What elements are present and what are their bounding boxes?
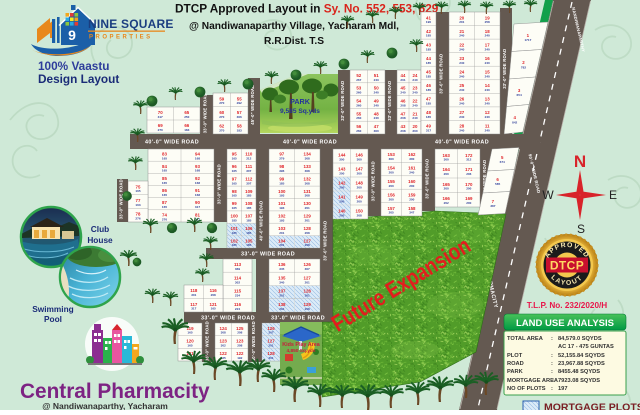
- svg-text:276: 276: [135, 217, 140, 221]
- svg-text:Kids Play Area: Kids Play Area: [282, 342, 321, 348]
- svg-text:212: 212: [246, 157, 251, 161]
- svg-text:250: 250: [184, 115, 189, 119]
- svg-text:DTCP Approved Layout in Sy. No: DTCP Approved Layout in Sy. No. 552, 553…: [175, 2, 439, 16]
- svg-text:270: 270: [219, 115, 224, 119]
- svg-text:240: 240: [459, 115, 464, 119]
- svg-text:201: 201: [305, 206, 310, 210]
- svg-text:165: 165: [162, 193, 167, 197]
- svg-text:842: 842: [512, 121, 517, 125]
- svg-text:234: 234: [235, 294, 240, 298]
- svg-text::: :: [551, 336, 553, 342]
- svg-text:240: 240: [374, 103, 379, 107]
- svg-text:308: 308: [305, 169, 310, 173]
- svg-text:165: 165: [232, 206, 237, 210]
- svg-text:PARK: PARK: [507, 369, 524, 375]
- svg-text:200: 200: [339, 213, 344, 217]
- svg-text::: :: [551, 361, 553, 367]
- svg-text:185: 185: [426, 102, 431, 106]
- svg-text:165: 165: [211, 307, 216, 311]
- svg-text:200: 200: [409, 197, 414, 201]
- svg-text:200: 200: [389, 171, 394, 175]
- svg-text:387: 387: [490, 204, 495, 208]
- svg-text:202: 202: [444, 201, 449, 205]
- svg-text:308: 308: [305, 194, 310, 198]
- svg-text:165: 165: [232, 194, 237, 198]
- svg-text:240: 240: [459, 34, 464, 38]
- svg-text:260: 260: [356, 103, 361, 107]
- svg-text:@ Nandiwanaparthy Village, Yac: @ Nandiwanaparthy Village, Yacharam Mdl,: [189, 21, 399, 32]
- svg-text:183: 183: [237, 129, 242, 133]
- svg-text:W: W: [542, 188, 554, 202]
- svg-text:258: 258: [485, 20, 490, 24]
- svg-text:201: 201: [305, 219, 310, 223]
- svg-text:200: 200: [444, 172, 449, 176]
- svg-text:200: 200: [466, 187, 471, 191]
- svg-text::: :: [552, 378, 554, 384]
- svg-text:674: 674: [500, 160, 505, 164]
- svg-text:208: 208: [357, 213, 362, 217]
- svg-text:240: 240: [400, 91, 405, 95]
- svg-text:240: 240: [459, 88, 464, 92]
- svg-text:165: 165: [187, 343, 192, 347]
- svg-text::: :: [551, 353, 553, 359]
- svg-text:33'-0" WIDE ROAD: 33'-0" WIDE ROAD: [119, 179, 124, 219]
- svg-text:MORTGAGE PLOTS: MORTGAGE PLOTS: [544, 402, 640, 411]
- svg-text:240: 240: [412, 103, 417, 107]
- svg-text:300: 300: [389, 157, 394, 161]
- svg-text:33'-0" WIDE ROAD: 33'-0" WIDE ROAD: [203, 93, 208, 133]
- svg-text:300: 300: [339, 157, 344, 161]
- svg-text:307: 307: [305, 267, 310, 271]
- svg-text:185: 185: [232, 219, 237, 223]
- svg-text:585: 585: [495, 182, 500, 186]
- svg-text:NINE SQUARE: NINE SQUARE: [88, 17, 174, 31]
- svg-text:234: 234: [279, 307, 284, 311]
- svg-text::: :: [551, 369, 553, 375]
- svg-text:33'-0" WIDE ROAD: 33'-0" WIDE ROAD: [271, 316, 325, 322]
- svg-text:240: 240: [412, 78, 417, 82]
- svg-text:@ Nandiwanaparthy, Yacharam: @ Nandiwanaparthy, Yacharam: [42, 401, 168, 410]
- svg-text:240: 240: [485, 34, 490, 38]
- svg-text:201: 201: [279, 243, 284, 247]
- svg-text:200: 200: [389, 197, 394, 201]
- svg-text:100% Vaastu: 100% Vaastu: [38, 59, 109, 73]
- svg-text:193: 193: [279, 219, 284, 223]
- svg-text:347: 347: [409, 211, 414, 215]
- svg-text:183: 183: [184, 128, 189, 132]
- svg-text:396: 396: [279, 169, 284, 173]
- svg-text:N: N: [574, 152, 586, 171]
- svg-text:782: 782: [521, 66, 526, 70]
- svg-text:200: 200: [389, 184, 394, 188]
- svg-text:267: 267: [356, 78, 361, 82]
- svg-text:185: 185: [426, 115, 431, 119]
- svg-text:312: 312: [466, 158, 471, 162]
- svg-text:185: 185: [246, 243, 251, 247]
- svg-text:8455.48 SQYDS: 8455.48 SQYDS: [558, 369, 600, 375]
- svg-text:PROPERTIES: PROPERTIES: [89, 35, 153, 41]
- svg-text:276: 276: [162, 217, 167, 221]
- svg-text:165: 165: [162, 181, 167, 185]
- svg-text:185: 185: [279, 181, 284, 185]
- svg-text:200: 200: [339, 199, 344, 203]
- svg-text:301: 301: [279, 294, 284, 298]
- svg-text:200: 200: [357, 199, 362, 203]
- svg-text:208: 208: [237, 343, 242, 347]
- svg-text:201: 201: [268, 343, 273, 347]
- svg-text:308: 308: [305, 181, 310, 185]
- svg-text:302: 302: [221, 343, 226, 347]
- svg-text:260: 260: [356, 116, 361, 120]
- svg-text:208: 208: [237, 331, 242, 335]
- svg-text:208: 208: [400, 103, 405, 107]
- svg-text:7923.08 SQYDS: 7923.08 SQYDS: [558, 378, 600, 384]
- svg-text:270: 270: [158, 128, 163, 132]
- svg-text:243: 243: [374, 78, 379, 82]
- svg-text:240: 240: [374, 116, 379, 120]
- svg-text:ROAD: ROAD: [507, 361, 524, 367]
- svg-text:T.L.P. No. 232/2020/H: T.L.P. No. 232/2020/H: [527, 301, 607, 310]
- svg-text:House: House: [87, 235, 113, 245]
- svg-text:S: S: [577, 222, 585, 236]
- svg-text:185: 185: [426, 34, 431, 38]
- svg-text:301: 301: [305, 294, 310, 298]
- svg-text:52,155.84 SQYDS: 52,155.84 SQYDS: [558, 353, 605, 359]
- svg-text:300: 300: [444, 158, 449, 162]
- svg-text:33'-0" WIDE ROAD: 33'-0" WIDE ROAD: [439, 54, 444, 94]
- svg-text:45'-0" WIDE ROAD: 45'-0" WIDE ROAD: [250, 85, 255, 125]
- svg-text:200: 200: [357, 171, 362, 175]
- svg-text:200: 200: [339, 185, 344, 189]
- svg-text:300: 300: [409, 157, 414, 161]
- svg-text:197: 197: [558, 386, 568, 392]
- svg-text:40'-0" WIDE ROAD: 40'-0" WIDE ROAD: [145, 140, 199, 146]
- svg-text:185: 185: [426, 74, 431, 78]
- svg-text:300: 300: [374, 129, 379, 133]
- svg-text:33'-0" WIDE ROAD: 33'-0" WIDE ROAD: [387, 81, 392, 121]
- svg-text:340: 340: [279, 280, 284, 284]
- svg-text:240: 240: [485, 47, 490, 51]
- svg-text:317: 317: [195, 205, 200, 209]
- svg-text:40'-0" WIDE ROAD: 40'-0" WIDE ROAD: [283, 140, 337, 146]
- svg-text:165: 165: [135, 189, 140, 193]
- svg-text:201: 201: [459, 20, 464, 24]
- svg-text:185: 185: [232, 243, 237, 247]
- svg-text:84,579.0 SQYDS: 84,579.0 SQYDS: [558, 336, 602, 342]
- svg-text:308: 308: [221, 331, 226, 335]
- svg-text:DTCP: DTCP: [550, 259, 584, 273]
- svg-text:307: 307: [268, 331, 273, 335]
- svg-text:240: 240: [459, 61, 464, 65]
- svg-text:PARK: PARK: [290, 97, 311, 106]
- svg-text:Central Pharmacity: Central Pharmacity: [20, 380, 210, 403]
- svg-text:33'-0" WIDE ROAD: 33'-0" WIDE ROAD: [425, 159, 430, 199]
- svg-text:240: 240: [374, 91, 379, 95]
- svg-text:PLOT: PLOT: [507, 353, 523, 359]
- svg-text:205: 205: [389, 211, 394, 215]
- svg-text:33'-0" WIDE ROAD: 33'-0" WIDE ROAD: [502, 49, 507, 89]
- svg-text:302: 302: [235, 280, 240, 284]
- svg-text:168: 168: [195, 169, 200, 173]
- svg-text:33'-0" WIDE ROAD: 33'-0" WIDE ROAD: [371, 161, 376, 201]
- svg-text:185: 185: [246, 231, 251, 235]
- svg-text:240: 240: [485, 129, 490, 133]
- svg-text:185: 185: [246, 206, 251, 210]
- svg-text:190: 190: [426, 20, 431, 24]
- svg-text:40'-0" WIDE ROAD: 40'-0" WIDE ROAD: [435, 140, 489, 146]
- svg-text:260: 260: [356, 129, 361, 133]
- svg-text:307: 307: [246, 169, 251, 173]
- svg-text:200: 200: [357, 185, 362, 189]
- svg-text:185: 185: [232, 231, 237, 235]
- svg-text:240: 240: [485, 61, 490, 65]
- svg-text:9,585 Sq.yds: 9,585 Sq.yds: [280, 108, 320, 115]
- svg-text:185: 185: [426, 47, 431, 51]
- svg-text:200: 200: [444, 187, 449, 191]
- svg-text:9: 9: [68, 27, 76, 43]
- svg-text:200: 200: [409, 184, 414, 188]
- svg-text:Pool: Pool: [44, 314, 62, 324]
- svg-text:200: 200: [466, 201, 471, 205]
- svg-text:240: 240: [459, 102, 464, 106]
- svg-text:208: 208: [305, 307, 310, 311]
- svg-text:317: 317: [158, 115, 163, 119]
- svg-text:23,967.88 SQYDS: 23,967.88 SQYDS: [558, 361, 605, 367]
- svg-text:240: 240: [409, 171, 414, 175]
- svg-text:185: 185: [426, 88, 431, 92]
- svg-text:NO OF PLOTS: NO OF PLOTS: [507, 386, 546, 392]
- svg-text:1717: 1717: [524, 38, 531, 42]
- svg-text:165: 165: [162, 169, 167, 173]
- svg-text:240: 240: [485, 88, 490, 92]
- svg-text:185: 185: [246, 194, 251, 198]
- svg-text:33'-0" WIDE ROAD: 33'-0" WIDE ROAD: [241, 252, 295, 258]
- svg-text:206: 206: [466, 172, 471, 176]
- svg-text:33'-0" WIDE ROAD: 33'-0" WIDE ROAD: [340, 81, 345, 121]
- svg-text:192: 192: [237, 356, 242, 360]
- svg-text:240: 240: [459, 47, 464, 51]
- svg-text:Swimming: Swimming: [32, 304, 74, 314]
- svg-text:240: 240: [459, 74, 464, 78]
- svg-text:40'-0" WIDE ROAD: 40'-0" WIDE ROAD: [251, 321, 256, 361]
- svg-text:369: 369: [235, 267, 240, 271]
- svg-text:165: 165: [232, 169, 237, 173]
- svg-text:306: 306: [237, 115, 242, 119]
- svg-text:R.R.Dist. T.S: R.R.Dist. T.S: [264, 36, 324, 47]
- svg-text:193: 193: [279, 206, 284, 210]
- svg-text:345: 345: [279, 267, 284, 271]
- svg-text:308: 308: [305, 157, 310, 161]
- svg-text:165: 165: [162, 157, 167, 161]
- svg-text:240: 240: [485, 115, 490, 119]
- svg-text:Club: Club: [91, 224, 109, 234]
- svg-text:165: 165: [187, 331, 192, 335]
- svg-text:LAND USE ANALYSIS: LAND USE ANALYSIS: [516, 318, 614, 329]
- svg-text:224: 224: [235, 307, 240, 311]
- svg-text:208: 208: [211, 293, 216, 297]
- svg-text:279: 279: [279, 157, 284, 161]
- svg-text:270: 270: [219, 101, 224, 105]
- svg-text::: :: [551, 386, 553, 392]
- svg-text:240: 240: [485, 102, 490, 106]
- svg-text:240: 240: [412, 116, 417, 120]
- svg-text:307: 307: [246, 181, 251, 185]
- svg-text:292: 292: [237, 101, 242, 105]
- svg-text:AC 17 - 475 GUNTAS: AC 17 - 475 GUNTAS: [558, 344, 614, 350]
- svg-text:165: 165: [232, 181, 237, 185]
- svg-text:208: 208: [305, 243, 310, 247]
- svg-text:40'-0" WIDE ROAD: 40'-0" WIDE ROAD: [259, 201, 264, 241]
- svg-text:165: 165: [232, 157, 237, 161]
- svg-text:240: 240: [412, 91, 417, 95]
- svg-text:240: 240: [485, 74, 490, 78]
- svg-text:33'-0" WIDE ROAD: 33'-0" WIDE ROAD: [323, 221, 328, 261]
- svg-text:208: 208: [400, 129, 405, 133]
- svg-text:240: 240: [459, 129, 464, 133]
- svg-text:MORTGAGE AREA: MORTGAGE AREA: [507, 378, 558, 384]
- svg-text:TOTAL AREA: TOTAL AREA: [507, 336, 543, 342]
- svg-text:301: 301: [268, 356, 273, 360]
- svg-text:193: 193: [279, 194, 284, 198]
- svg-text:E: E: [609, 188, 617, 202]
- svg-text:654: 654: [517, 93, 522, 97]
- svg-text:270: 270: [219, 129, 224, 133]
- svg-text:168: 168: [195, 181, 200, 185]
- svg-text:165: 165: [162, 205, 167, 209]
- svg-text:317: 317: [191, 307, 196, 311]
- svg-text:201: 201: [279, 231, 284, 235]
- svg-text:4,850 Sq.yds: 4,850 Sq.yds: [286, 348, 315, 354]
- svg-text:300: 300: [357, 157, 362, 161]
- svg-text:33'-0" WIDE ROAD: 33'-0" WIDE ROAD: [201, 316, 255, 322]
- svg-text:200: 200: [339, 171, 344, 175]
- svg-text:201: 201: [305, 280, 310, 284]
- svg-text:163: 163: [135, 203, 140, 207]
- svg-text:168: 168: [195, 193, 200, 197]
- svg-text:317: 317: [426, 129, 431, 133]
- svg-text:185: 185: [246, 219, 251, 223]
- svg-text:185: 185: [426, 61, 431, 65]
- svg-text:Design Layout: Design Layout: [38, 72, 119, 86]
- svg-text:208: 208: [305, 231, 310, 235]
- svg-text:168: 168: [195, 157, 200, 161]
- svg-text:260: 260: [356, 91, 361, 95]
- svg-text:208: 208: [400, 116, 405, 120]
- svg-text:33'-0" WIDE ROAD: 33'-0" WIDE ROAD: [217, 164, 222, 204]
- svg-text:360: 360: [412, 129, 417, 133]
- svg-text:201: 201: [400, 78, 405, 82]
- svg-text:301: 301: [191, 293, 196, 297]
